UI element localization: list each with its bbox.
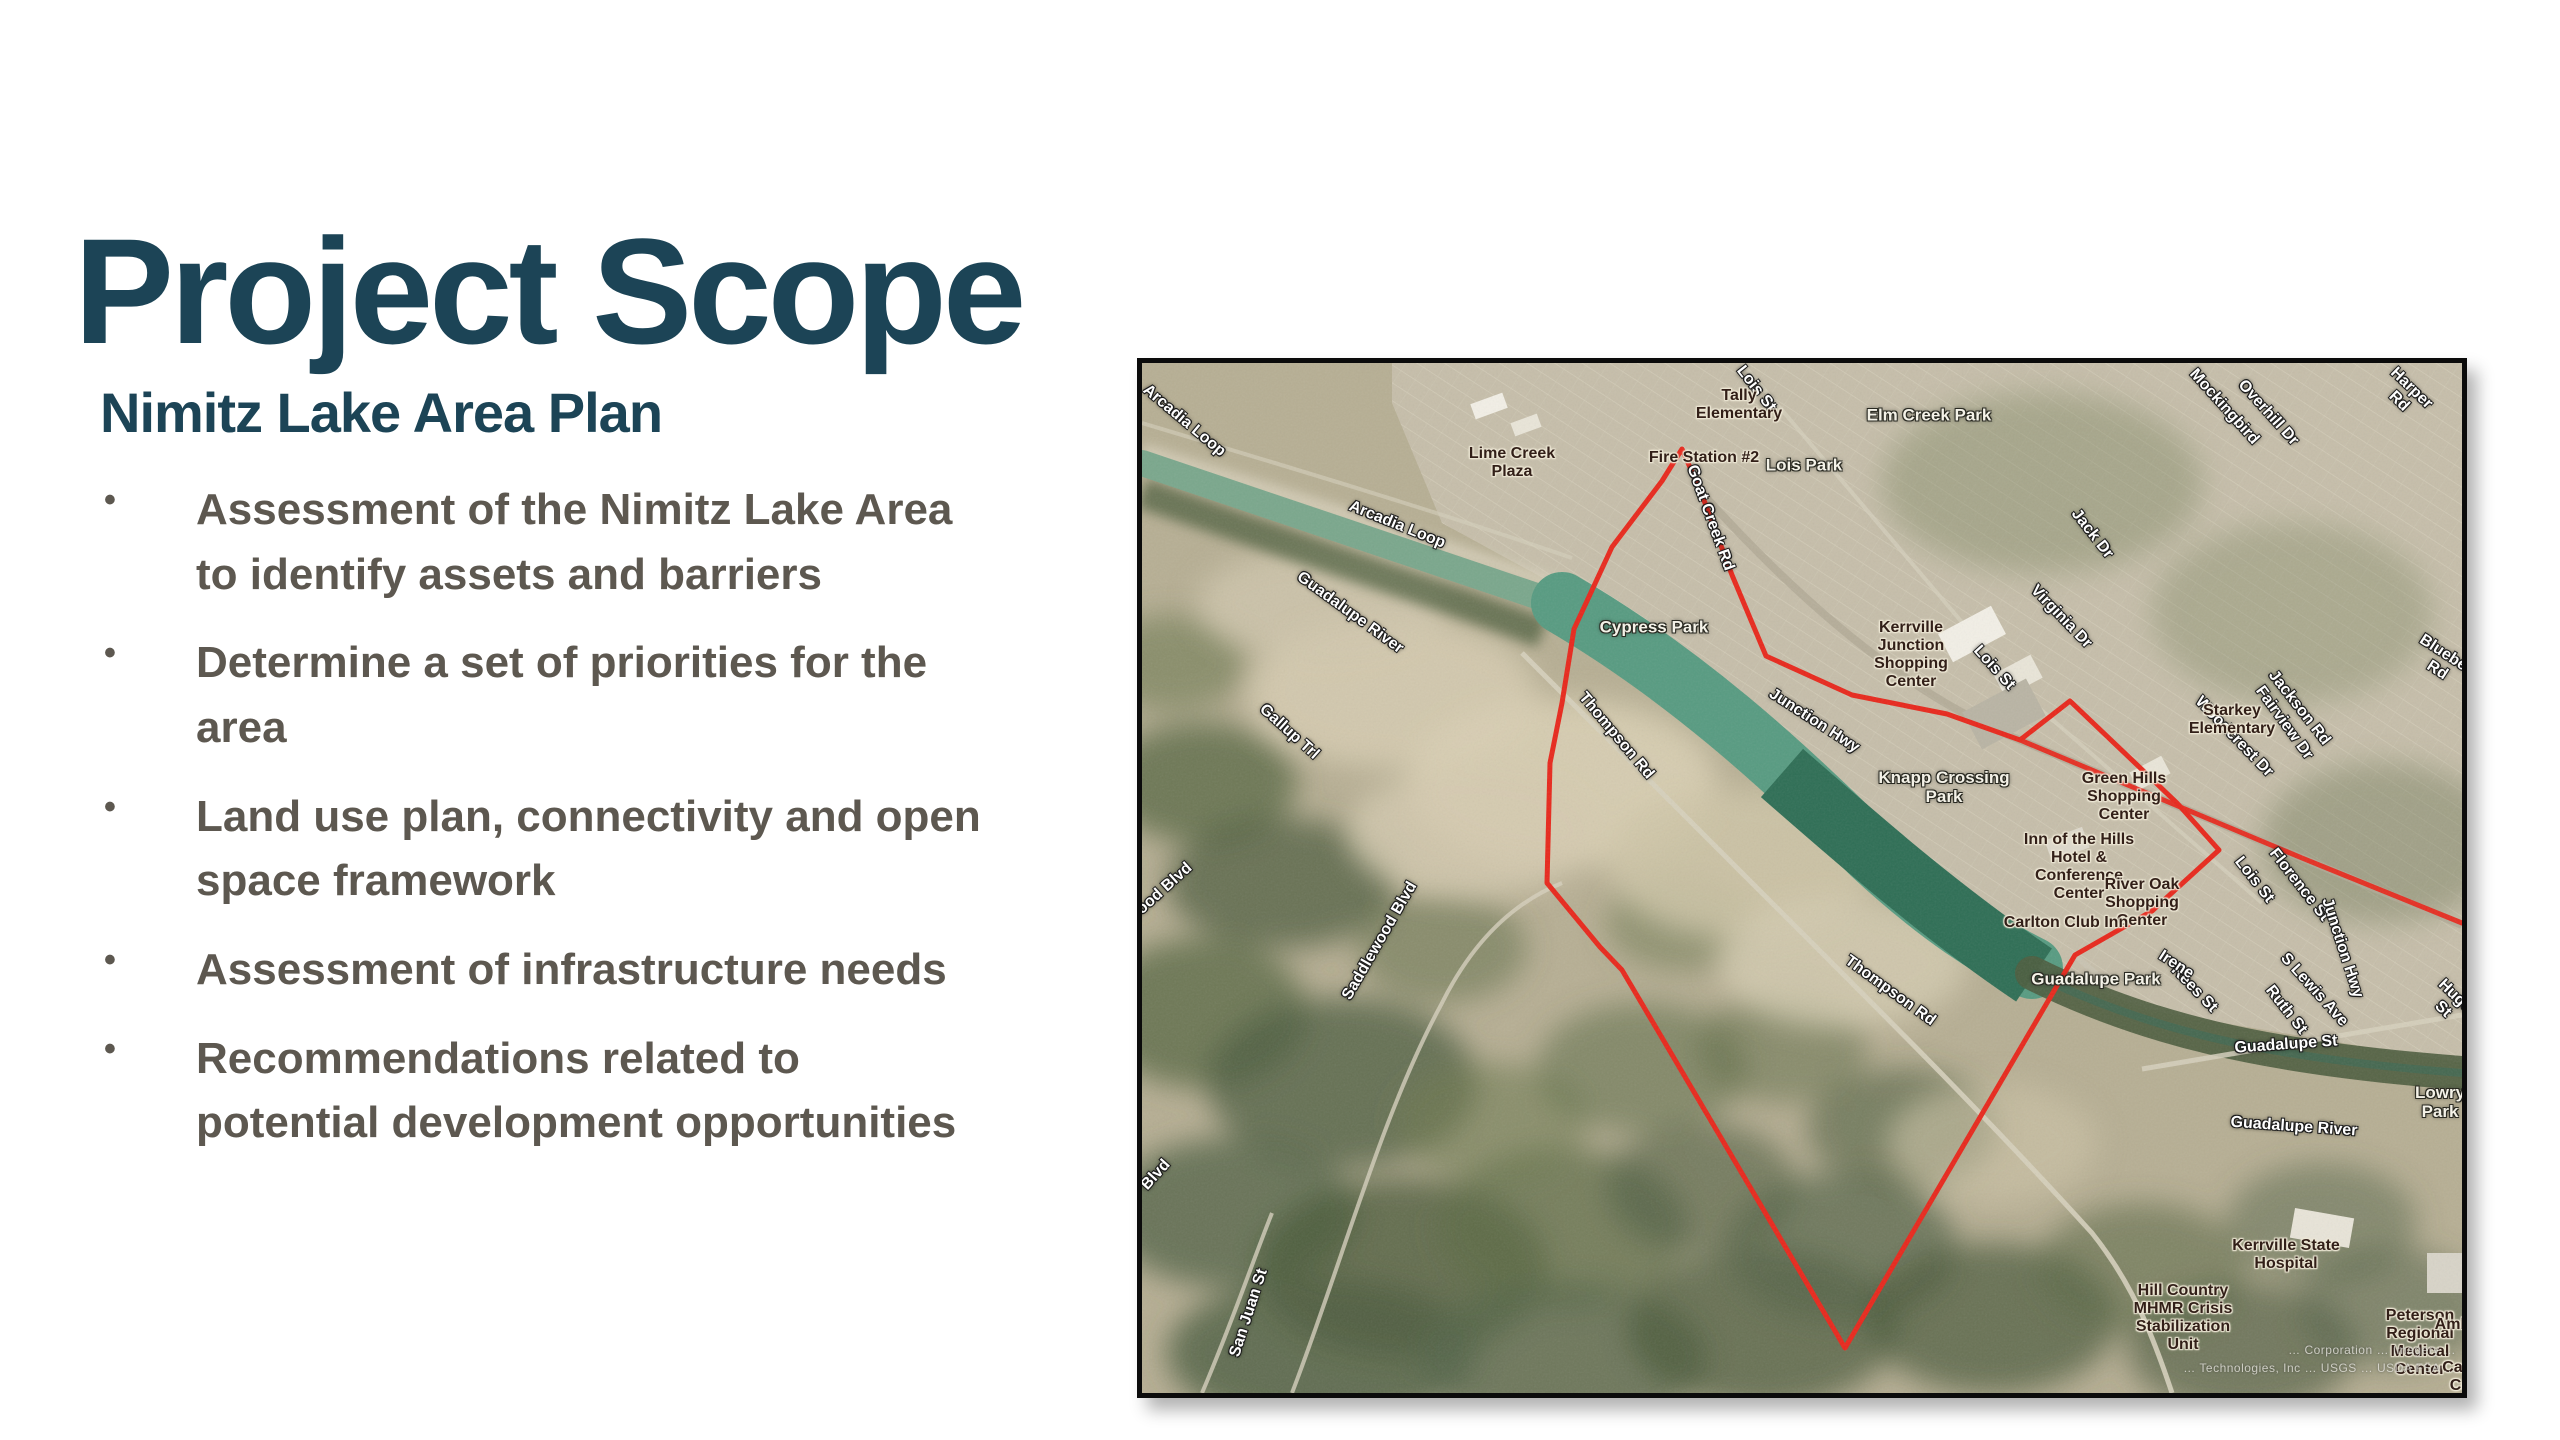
bullet-text: Determine a set of priorities for the ar… — [196, 638, 927, 752]
map-label: Bluebell Rd — [2406, 631, 2462, 695]
map-attribution-line2: … Technologies, Inc … USGS … USDA FSA … — [2183, 1361, 2456, 1375]
map-label: Tally Elementary — [1696, 387, 1782, 423]
bullet-item: •Assessment of the Nimitz Lake Area to i… — [100, 478, 1080, 607]
map-label: Mockingbird — [2186, 366, 2263, 449]
map-label: Knapp Crossing Park — [1878, 768, 2009, 806]
map-label: Lois Park — [1766, 455, 1843, 474]
map-label: Junction Hwy — [1766, 685, 1863, 757]
map-label: Guadalupe Park — [2031, 969, 2160, 988]
map-label: Hugo St — [2422, 976, 2462, 1030]
slide-subtitle: Nimitz Lake Area Plan — [100, 380, 662, 445]
bullet-marker: • — [104, 476, 116, 526]
page-title: Project Scope — [74, 213, 1022, 371]
presentation-slide: Project Scope Nimitz Lake Area Plan •Ass… — [0, 0, 2560, 1440]
map-label: Starkey Elementary — [2189, 702, 2275, 738]
map-label: Ruth St — [2261, 982, 2310, 1038]
map-label: Thompson Rd — [1575, 689, 1658, 783]
map-label: Jack Dr — [2067, 506, 2117, 563]
map-label: Thompson Rd — [1841, 952, 1939, 1030]
aerial-map-image: Arcadia LoopArcadia LoopLois StGoat Cree… — [1142, 363, 2462, 1393]
map-label: Lois St — [2231, 853, 2278, 906]
map-label: Saddlewood Blvd — [1339, 879, 1421, 1003]
map-label: Fire Station #2 — [1649, 449, 1759, 467]
map-label: Inn of the Hills Hotel & Conference Cent… — [2024, 831, 2134, 903]
bullet-text: Assessment of infrastructure needs — [196, 945, 947, 994]
map-label: Florence St — [2265, 845, 2333, 925]
bullet-marker: • — [104, 936, 116, 986]
map-label-layer: Arcadia LoopArcadia LoopLois StGoat Cree… — [1142, 363, 2462, 1393]
map-label: Guadalupe River — [1293, 568, 1406, 657]
map-label: Guadalupe St — [2234, 1032, 2338, 1057]
map-label: Harper Rd — [2372, 363, 2438, 428]
bullet-marker: • — [104, 1025, 116, 1075]
map-attribution-line1: … Corporation … Imagery … — [2288, 1343, 2456, 1357]
map-label: Ambula — [2435, 1316, 2462, 1334]
map-label: Gallup Trl — [1256, 701, 1323, 764]
map-label: Arcadia Loop — [1142, 381, 1229, 460]
bullet-text: Recommendations related to potential dev… — [196, 1034, 956, 1148]
map-label: wood Blvd — [1142, 859, 1196, 926]
bullet-item: •Recommendations related to potential de… — [100, 1027, 1080, 1156]
bullet-item: •Assessment of infrastructure needs — [100, 938, 1080, 1003]
map-label: S Lewis Ave — [2277, 950, 2352, 1030]
map-label: Goat Creek Rd — [1683, 463, 1738, 574]
map-label: Lime Creek Plaza — [1469, 445, 1555, 481]
map-label: Hill Country MHMR Crisis Stabilization U… — [2134, 1282, 2233, 1354]
map-label: Woodcrest Dr — [2191, 693, 2277, 781]
map-label: Lowry Park — [2415, 1083, 2462, 1121]
map-label: Blvd — [1142, 1156, 1174, 1194]
map-label: Jackson Rd — [2264, 667, 2333, 749]
map-label: Fairview Dr — [2251, 683, 2316, 763]
map-label: Elm Creek Park — [1867, 405, 1992, 424]
map-label: Arcadia Loop — [1346, 498, 1447, 553]
map-label: Lois St — [1969, 642, 2018, 694]
bullet-list: •Assessment of the Nimitz Lake Area to i… — [100, 478, 1080, 1180]
aerial-map-figure: Arcadia LoopArcadia LoopLois StGoat Cree… — [1137, 358, 2467, 1398]
map-label: Guadalupe River — [2230, 1114, 2358, 1141]
map-label: Junction Hwy — [2317, 896, 2366, 1000]
map-label: Rees St — [2167, 962, 2221, 1017]
map-label: Virginia Dr — [2027, 582, 2096, 652]
bullet-text: Assessment of the Nimitz Lake Area to id… — [196, 485, 952, 599]
map-label: Kerrville Junction Shopping Center — [1874, 619, 1948, 691]
map-label: Kerrville State Hospital — [2232, 1237, 2340, 1273]
map-label: Green Hills Shopping Center — [2082, 770, 2166, 824]
map-label: Lois St — [1733, 363, 1780, 416]
map-label: River Oak Shopping Center — [2105, 876, 2180, 930]
bullet-item: •Land use plan, connectivity and open sp… — [100, 785, 1080, 914]
map-label: Carlton Club Inn — [2004, 914, 2128, 932]
map-label: Overhill Dr — [2234, 377, 2302, 450]
map-label: San Juan St — [1226, 1267, 1271, 1360]
map-label: Irene — [2155, 947, 2197, 983]
bullet-marker: • — [104, 629, 116, 679]
bullet-marker: • — [104, 783, 116, 833]
bullet-item: •Determine a set of priorities for the a… — [100, 631, 1080, 760]
map-label: Cypress Park — [1600, 617, 1709, 636]
bullet-text: Land use plan, connectivity and open spa… — [196, 792, 981, 906]
